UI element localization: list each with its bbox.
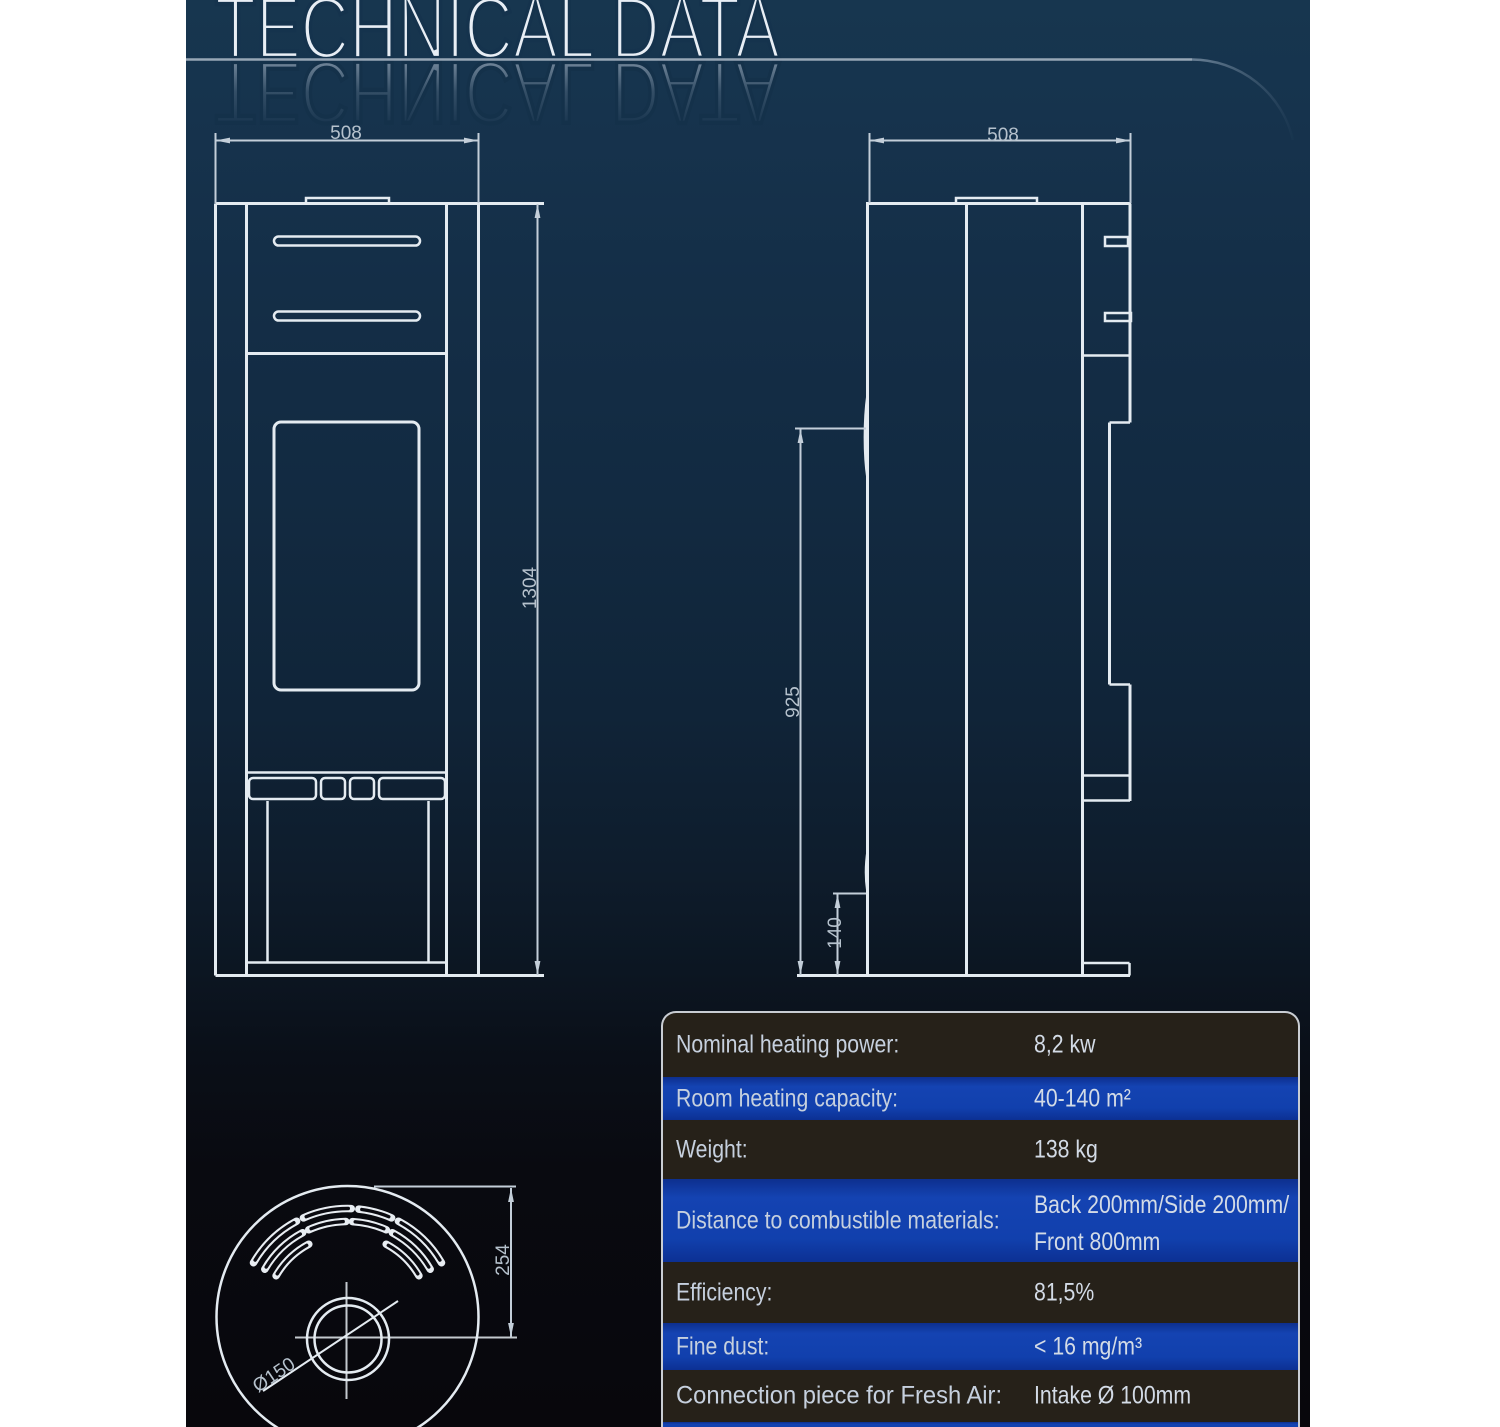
svg-text:140: 140 (825, 917, 846, 949)
svg-text:254: 254 (493, 1244, 514, 1276)
svg-text:925: 925 (783, 686, 804, 718)
svg-text:Ø150: Ø150 (249, 1354, 299, 1397)
svg-text:1304: 1304 (520, 566, 541, 609)
svg-text:508: 508 (987, 125, 1019, 146)
svg-text:TECHNICAL DATA: TECHNICAL DATA (215, 43, 781, 142)
svg-text:508: 508 (330, 123, 362, 144)
